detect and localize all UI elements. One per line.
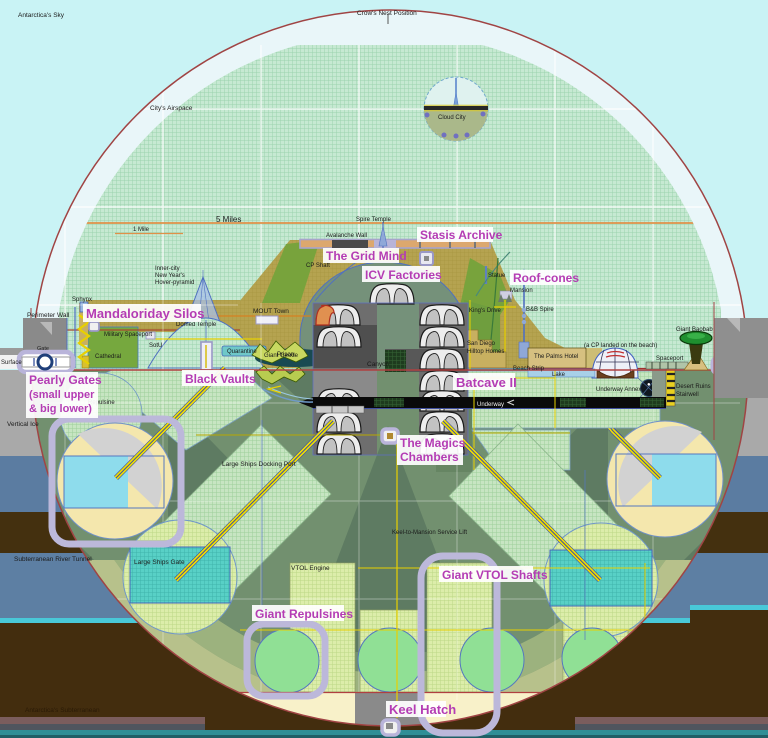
svg-text:CP Shaft: CP Shaft [306, 263, 330, 269]
svg-text:1 Mile: 1 Mile [133, 227, 150, 233]
svg-text:Underway: Underway [477, 402, 504, 408]
svg-text:Domed Temple: Domed Temple [176, 322, 217, 328]
svg-text:Gate: Gate [37, 346, 49, 352]
svg-text:The Palms Hotel: The Palms Hotel [534, 354, 578, 360]
svg-text:Black Vaults: Black Vaults [185, 372, 256, 386]
svg-text:Military Spaceport: Military Spaceport [104, 332, 152, 338]
svg-text:Lake: Lake [552, 372, 566, 378]
svg-text:Large Ships Docking Port: Large Ships Docking Port [222, 461, 296, 468]
svg-text:The Magics: The Magics [400, 436, 466, 450]
svg-text:Mansion: Mansion [510, 288, 533, 294]
svg-text:(a CP landed on the beach): (a CP landed on the beach) [584, 343, 657, 349]
svg-text:King's Drive: King's Drive [469, 308, 501, 314]
svg-text:Chambers: Chambers [400, 450, 459, 464]
svg-text:Quarantine: Quarantine [227, 349, 257, 355]
svg-text:Pearly Gates: Pearly Gates [29, 373, 102, 387]
svg-text:Giant Geode: Giant Geode [264, 353, 299, 359]
svg-text:(small upper: (small upper [29, 389, 95, 401]
svg-text:B&B Spire: B&B Spire [526, 307, 554, 313]
svg-text:The Grid Mind: The Grid Mind [326, 249, 407, 263]
svg-text:Desert Ruins: Desert Ruins [676, 384, 711, 390]
svg-text:Antarctica's Sky: Antarctica's Sky [18, 12, 65, 19]
svg-text:VTOL Engine: VTOL Engine [291, 565, 330, 572]
svg-text:Hilltop Homes: Hilltop Homes [467, 349, 504, 355]
svg-text:Keel-to-Mansion Service Lift: Keel-to-Mansion Service Lift [392, 530, 467, 536]
svg-text:Hover-pyramid: Hover-pyramid [155, 280, 194, 286]
svg-text:Subterranean River Tunnel: Subterranean River Tunnel [14, 556, 92, 563]
svg-text:ICV Factories: ICV Factories [365, 268, 442, 282]
svg-text:SotU: SotU [149, 343, 162, 349]
svg-text:Stasis Archive: Stasis Archive [420, 228, 503, 242]
svg-text:Mandaloriday Silos: Mandaloriday Silos [86, 306, 204, 321]
svg-text:Statue: Statue [488, 273, 506, 279]
svg-text:Giant Baobab: Giant Baobab [676, 327, 713, 333]
svg-text:Giant VTOL Shafts: Giant VTOL Shafts [442, 568, 548, 582]
svg-text:Batcave II: Batcave II [456, 375, 517, 390]
svg-text:Avalanche Wall: Avalanche Wall [326, 233, 367, 239]
svg-text:Stairwell: Stairwell [676, 392, 699, 398]
svg-text:San Diego: San Diego [467, 341, 496, 347]
svg-text:●: ● [647, 382, 651, 388]
svg-text:Roof-cones: Roof-cones [513, 271, 579, 285]
svg-text:Spire Temple: Spire Temple [356, 217, 392, 223]
svg-text:Spaceport: Spaceport [656, 356, 684, 362]
svg-text:Cloud City: Cloud City [438, 115, 466, 121]
svg-text:MOUT Town: MOUT Town [253, 308, 289, 315]
svg-text:Surface: Surface [1, 360, 22, 366]
svg-text:New Year's: New Year's [155, 273, 185, 279]
svg-text:Antarctica's Subterranean: Antarctica's Subterranean [25, 707, 100, 714]
svg-text:Inner-city: Inner-city [155, 266, 180, 272]
svg-text:Underway Annex: Underway Annex [596, 387, 641, 393]
svg-text:& big lower): & big lower) [29, 403, 92, 415]
svg-text:Canyon: Canyon [367, 361, 390, 368]
svg-text:Sphynx: Sphynx [72, 297, 92, 303]
svg-text:Keel Hatch: Keel Hatch [389, 702, 456, 717]
svg-text:Vertical Ice: Vertical Ice [7, 421, 39, 428]
svg-text:Cathedral: Cathedral [95, 354, 121, 360]
svg-text:5 Miles: 5 Miles [216, 215, 241, 224]
svg-text:City's Airspace: City's Airspace [150, 105, 193, 112]
svg-text:Giant Repulsines: Giant Repulsines [255, 607, 353, 621]
svg-text:Perimeter Wall: Perimeter Wall [27, 312, 70, 319]
svg-text:Crow's Nest Position: Crow's Nest Position [357, 10, 417, 17]
svg-text:Large Ships Gate: Large Ships Gate [134, 559, 185, 566]
svg-text:Beach Strip: Beach Strip [513, 366, 545, 372]
